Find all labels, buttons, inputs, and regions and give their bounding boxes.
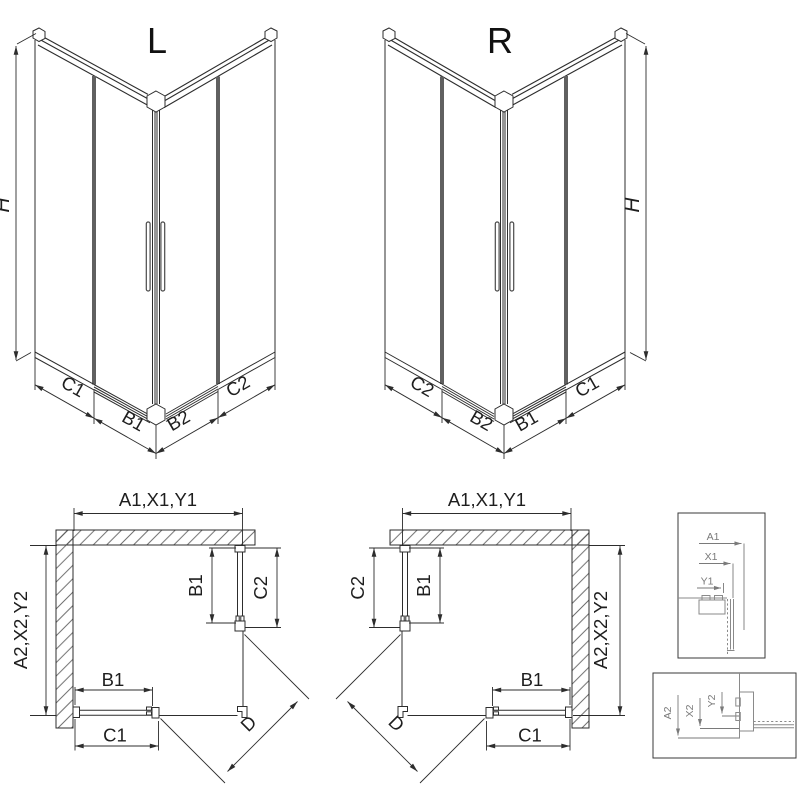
dimension-bottom-c1: C1 xyxy=(487,719,571,751)
dimension-bottom-b1: B1 xyxy=(493,669,571,706)
door-handle-icon xyxy=(146,222,150,291)
isometric-view-right: R H C2 xyxy=(383,20,646,459)
dim-label-c1: C1 xyxy=(103,725,127,746)
dim-label-c1: C1 xyxy=(58,371,89,401)
isometric-view-left: L xyxy=(0,20,277,459)
wall-right-hatch xyxy=(572,530,589,728)
dim-label-b2: B2 xyxy=(163,406,193,436)
plan-view-right: A1,X1,Y1 A2,X2,Y2 C2 B1 B1 C1 xyxy=(336,489,625,783)
dimension-side-b1: B1 xyxy=(185,548,236,623)
dim-label-c2: C2 xyxy=(250,576,271,600)
dimension-a2-side: A2,X2,Y2 xyxy=(10,546,57,716)
door-handle-icon xyxy=(161,222,165,291)
dim-label-c2: C2 xyxy=(347,576,368,600)
dimension-side-c2: C2 xyxy=(347,548,400,628)
dimension-height-l: H xyxy=(0,34,36,362)
dimension-bottom-c1: C1 xyxy=(75,719,159,751)
plan-view-left: A1,X1,Y1 A2,X2,Y2 B1 C2 B1 C1 xyxy=(10,489,309,783)
dim-label-a2x2y2: A2,X2,Y2 xyxy=(10,591,31,669)
wall-top-hatch xyxy=(390,530,589,545)
door-handle-icon xyxy=(510,222,514,291)
dim-label-c1: C1 xyxy=(571,371,602,401)
door-handle-icon xyxy=(495,222,499,291)
wall-top-hatch xyxy=(56,530,255,545)
detail-label-y2: Y2 xyxy=(706,694,718,707)
profile-cross-section xyxy=(736,673,794,738)
view-label-right: R xyxy=(487,20,513,61)
dim-label-a1x1y1: A1,X1,Y1 xyxy=(119,489,197,510)
side-glass-panel xyxy=(235,546,247,718)
enclosure-structure-r xyxy=(383,28,627,425)
shower-enclosure-drawing: L xyxy=(0,0,800,800)
dimension-diagonal-d: D xyxy=(336,635,485,784)
dim-label-b1: B1 xyxy=(511,406,541,435)
dimension-diagonal-d: D xyxy=(161,635,310,784)
dim-label-a2x2y2: A2,X2,Y2 xyxy=(590,591,611,669)
bottom-glass-panel xyxy=(408,707,573,718)
dim-label-h: H xyxy=(621,197,644,213)
detail-section-top: A1 X1 Y1 xyxy=(678,513,765,658)
dim-label-b1: B1 xyxy=(521,669,544,690)
detail-label-a2: A2 xyxy=(662,706,674,719)
dim-label-b1: B1 xyxy=(185,574,206,597)
dim-label-c2: C2 xyxy=(407,371,438,401)
dim-label-b1: B1 xyxy=(413,574,434,597)
dim-label-b1: B1 xyxy=(119,406,149,435)
detail-section-bottom: A2 X2 Y2 xyxy=(653,673,796,758)
dim-label-h: H xyxy=(0,197,14,213)
profile-cross-section xyxy=(678,596,735,656)
dimension-bottom-b1: B1 xyxy=(75,669,153,706)
dim-label-c2: C2 xyxy=(222,371,253,401)
bottom-glass-panel xyxy=(73,707,238,718)
side-glass-panel xyxy=(398,546,410,718)
dim-label-b2: B2 xyxy=(467,406,497,436)
dim-label-c1: C1 xyxy=(518,725,542,746)
detail-label-y1: Y1 xyxy=(701,576,714,588)
dim-label-b1: B1 xyxy=(102,669,125,690)
enclosure-structure-l xyxy=(33,28,277,425)
dim-label-d: D xyxy=(236,711,260,735)
dim-label-a1x1y1: A1,X1,Y1 xyxy=(448,489,526,510)
view-label-left: L xyxy=(147,20,167,61)
detail-label-x2: X2 xyxy=(684,704,696,717)
detail-label-x1: X1 xyxy=(705,551,718,563)
technical-drawing-page: L xyxy=(0,0,800,800)
detail-label-a1: A1 xyxy=(707,531,720,543)
dim-label-d: D xyxy=(384,711,408,735)
dimension-side-c2: C2 xyxy=(245,548,281,628)
wall-left-hatch xyxy=(56,530,73,728)
dimension-side-b1: B1 xyxy=(409,548,444,623)
